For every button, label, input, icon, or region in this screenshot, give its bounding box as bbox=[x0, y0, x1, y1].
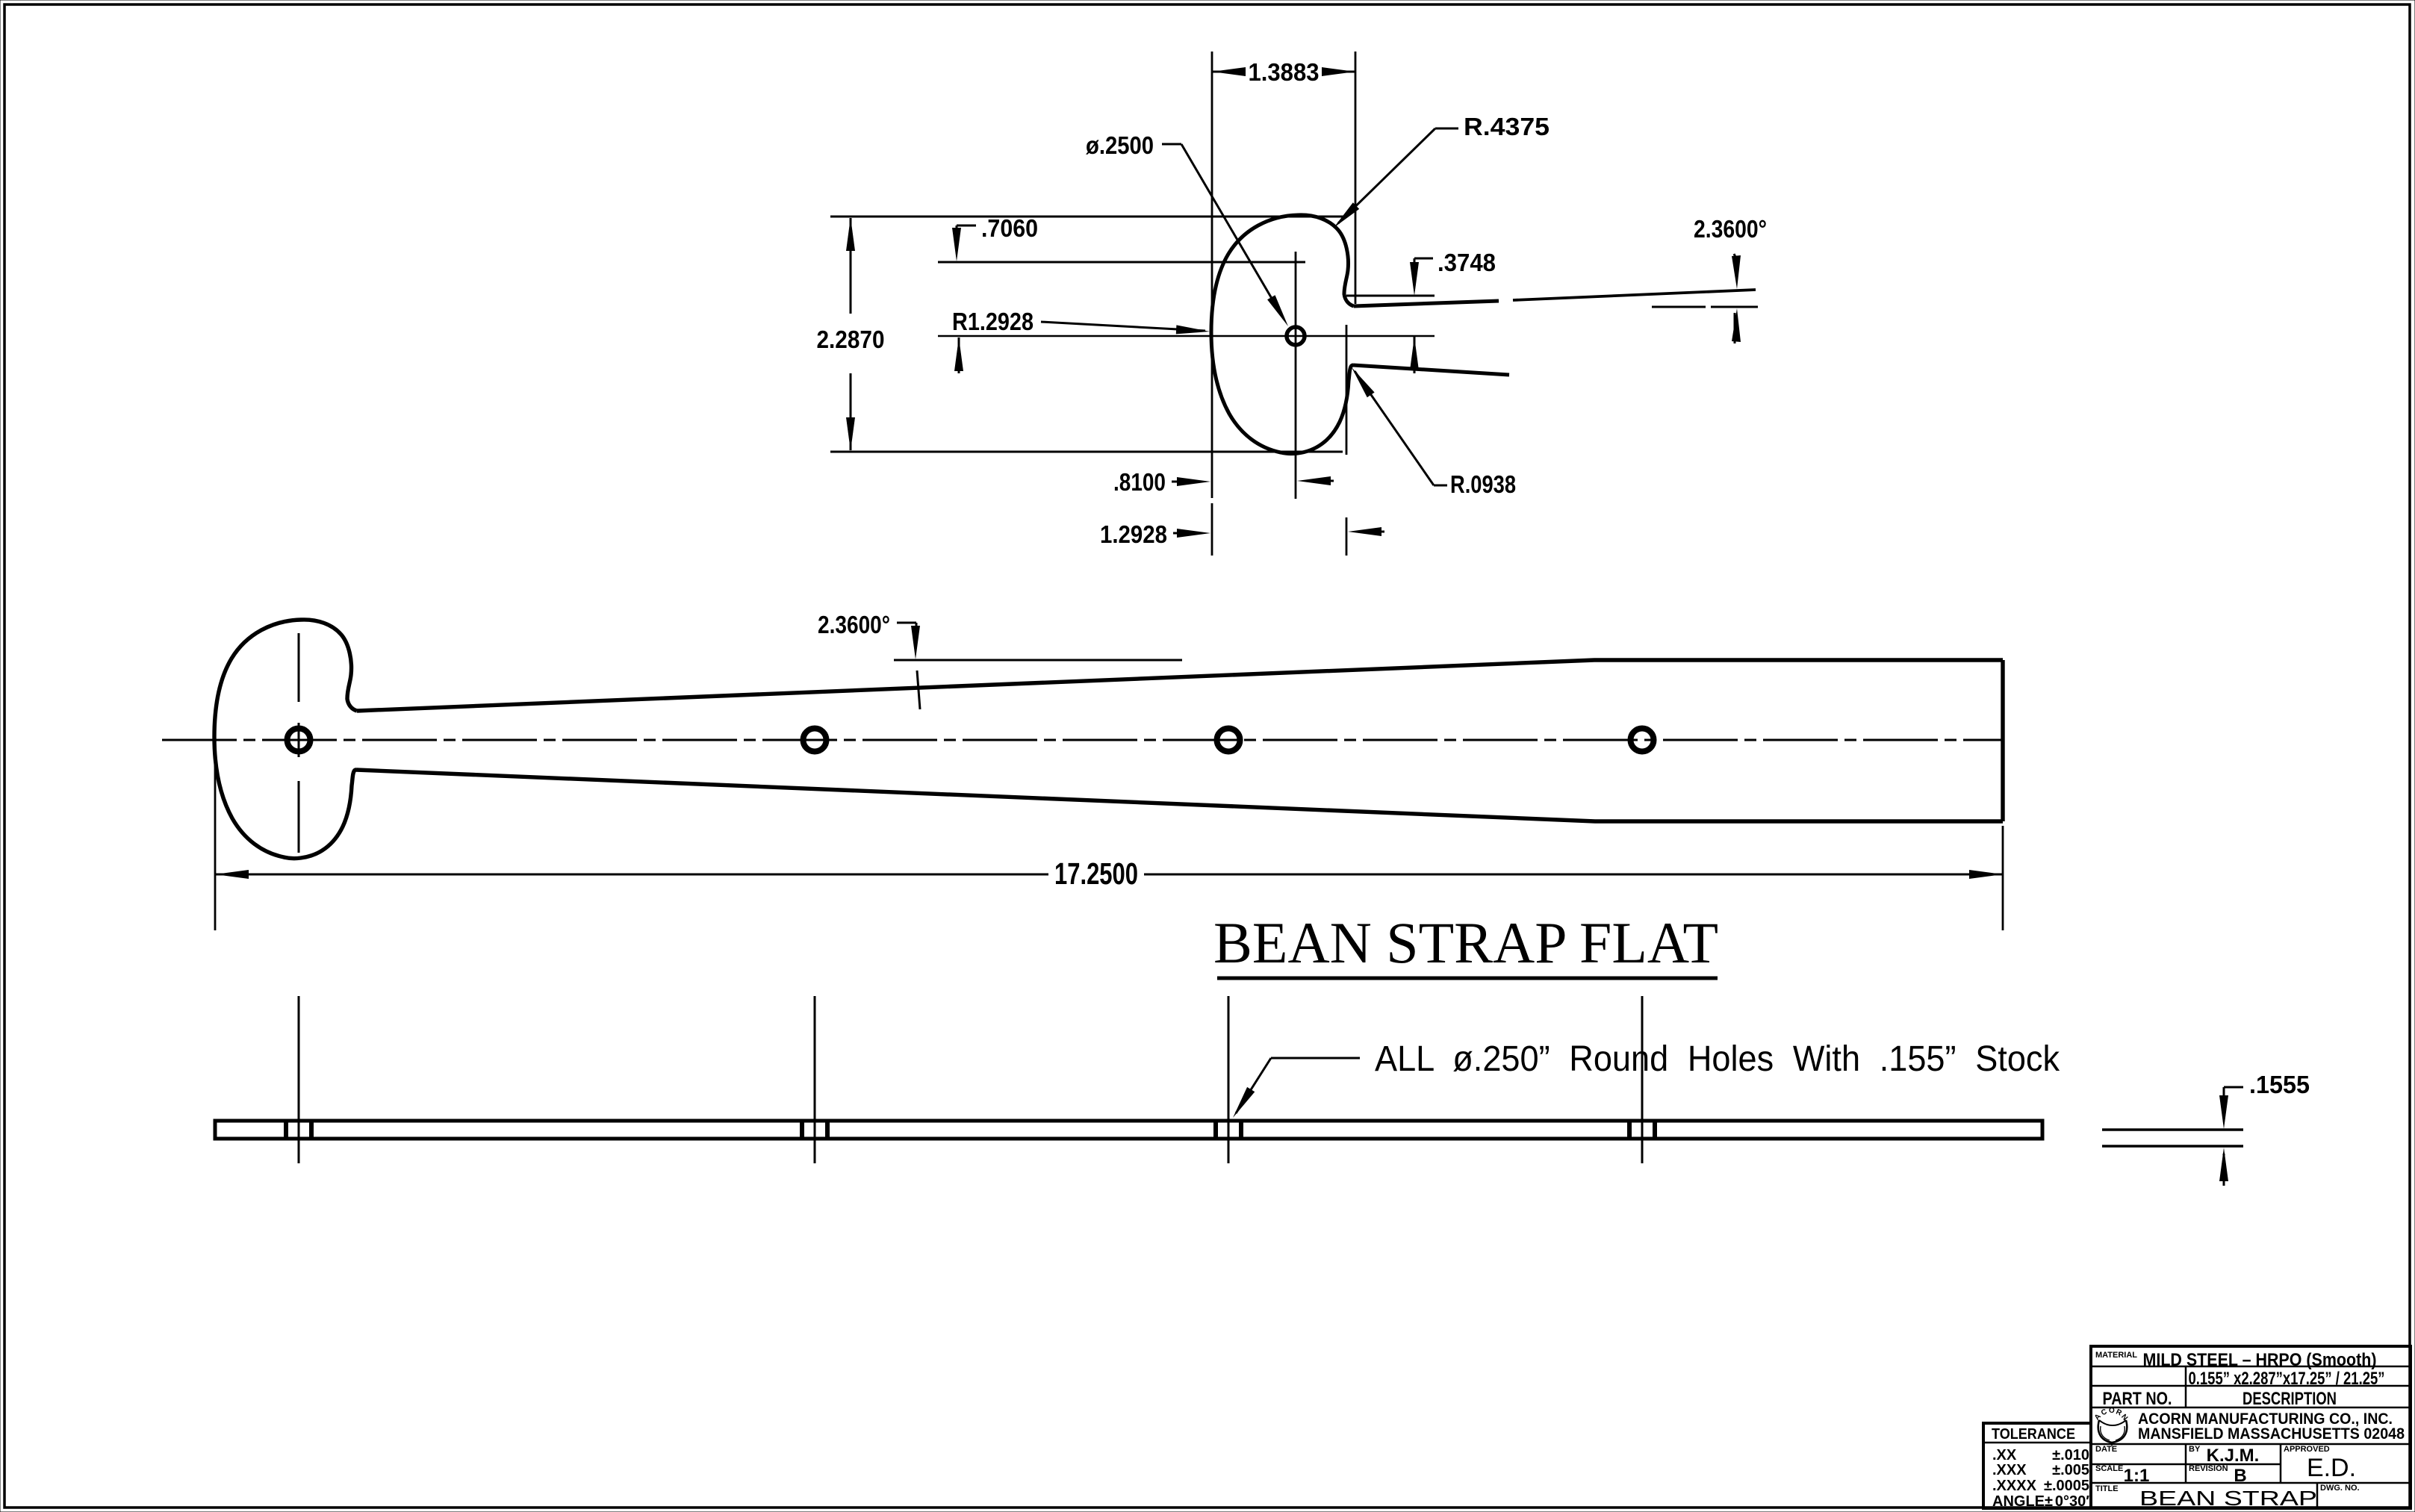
svg-text:MATERIAL: MATERIAL bbox=[2095, 1351, 2137, 1360]
svg-text:.1555: .1555 bbox=[2249, 1071, 2310, 1098]
svg-text:±.0005: ±.0005 bbox=[2044, 1478, 2089, 1494]
svg-text:2.3600°: 2.3600° bbox=[818, 611, 890, 638]
svg-text:ø.2500: ø.2500 bbox=[1086, 131, 1154, 159]
svg-text:.XX: .XX bbox=[1992, 1447, 2017, 1463]
svg-text:0.155” x2.287”x17.25” / 21.25”: 0.155” x2.287”x17.25” / 21.25” bbox=[2189, 1369, 2385, 1389]
svg-text:K.J.M.: K.J.M. bbox=[2207, 1446, 2260, 1466]
svg-text:TITLE: TITLE bbox=[2095, 1484, 2119, 1493]
svg-text:0°30′: 0°30′ bbox=[2055, 1493, 2089, 1510]
svg-text:2.2870: 2.2870 bbox=[817, 326, 885, 353]
svg-text:±.005: ±.005 bbox=[2052, 1462, 2089, 1478]
svg-text:MILD STEEL – HRPO (Smooth): MILD STEEL – HRPO (Smooth) bbox=[2143, 1350, 2377, 1370]
svg-text:R1.2928: R1.2928 bbox=[952, 308, 1034, 335]
svg-text:.XXXX: .XXXX bbox=[1992, 1478, 2037, 1494]
svg-text:.7060: .7060 bbox=[981, 214, 1038, 242]
svg-text:±.010: ±.010 bbox=[2052, 1447, 2089, 1463]
svg-text:APPROVED: APPROVED bbox=[2284, 1445, 2330, 1454]
svg-text:DWG. NO.: DWG. NO. bbox=[2320, 1484, 2360, 1493]
svg-text:R.0938: R.0938 bbox=[1450, 470, 1516, 498]
svg-text:DATE: DATE bbox=[2095, 1445, 2117, 1454]
svg-text:MANSFIELD MASSACHUSETTS 02048: MANSFIELD MASSACHUSETTS 02048 bbox=[2138, 1425, 2405, 1443]
svg-text:17.2500: 17.2500 bbox=[1054, 856, 1138, 891]
svg-text:BEAN STRAP: BEAN STRAP bbox=[2139, 1487, 2317, 1510]
svg-text:1:1: 1:1 bbox=[2124, 1466, 2150, 1486]
svg-text:1.3883: 1.3883 bbox=[1249, 58, 1320, 86]
svg-text:1.2928: 1.2928 bbox=[1100, 520, 1167, 548]
svg-text:R.4375: R.4375 bbox=[1464, 113, 1550, 140]
svg-text:DESCRIPTION: DESCRIPTION bbox=[2242, 1389, 2337, 1409]
svg-text:.3748: .3748 bbox=[1437, 249, 1496, 276]
svg-text:BY: BY bbox=[2189, 1445, 2201, 1454]
svg-text:ANGLE±: ANGLE± bbox=[1992, 1493, 2053, 1510]
svg-text:TOLERANCE: TOLERANCE bbox=[1992, 1426, 2075, 1443]
svg-text:SCALE: SCALE bbox=[2095, 1464, 2123, 1473]
svg-text:REVISION: REVISION bbox=[2189, 1464, 2228, 1473]
svg-text:C: C bbox=[2100, 1407, 2108, 1417]
svg-text:.8100: .8100 bbox=[1113, 468, 1166, 496]
svg-text:.XXX: .XXX bbox=[1992, 1462, 2027, 1478]
svg-text:BEAN STRAP FLAT: BEAN STRAP FLAT bbox=[1213, 910, 1718, 975]
svg-text:O: O bbox=[2109, 1407, 2115, 1415]
svg-text:PART NO.: PART NO. bbox=[2103, 1389, 2172, 1409]
svg-text:B: B bbox=[2234, 1466, 2246, 1486]
svg-text:2.3600°: 2.3600° bbox=[1694, 215, 1767, 243]
svg-text:ALL ø.250” Round Holes With .1: ALL ø.250” Round Holes With .155” Stock bbox=[1375, 1039, 2060, 1079]
svg-text:E.D.: E.D. bbox=[2307, 1454, 2356, 1482]
